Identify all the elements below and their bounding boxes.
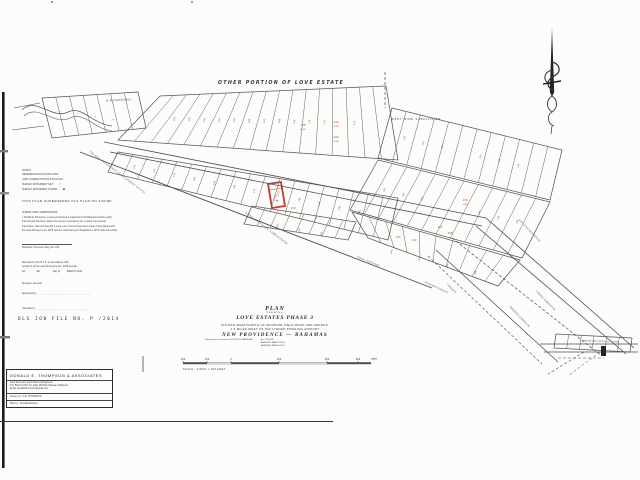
situate-line-1: SITUATE WEST/NORTH OF WINDSOR FIELD ROAD… (175, 323, 375, 327)
charlotteville-label: CHARLOTTEVILLE SUBDIVISION (245, 211, 289, 246)
terraces-label: PERMANENT TERRACES (424, 281, 449, 295)
lot-division (433, 236, 436, 262)
scale-tick-label: 200 (277, 358, 282, 361)
lot-label: 126 (518, 163, 521, 168)
lot-label: 168 (474, 270, 477, 275)
lot-division (446, 241, 453, 267)
scan-edge-bar (2, 92, 5, 468)
lot-label: 121 (404, 135, 407, 140)
lot-label: 102 (189, 116, 192, 121)
road-line (486, 218, 634, 348)
lot-division (450, 185, 478, 239)
lot-division (567, 335, 569, 349)
red-lot-area: 5,000 (462, 204, 468, 206)
road-line (110, 152, 482, 226)
other-portion-label: OTHER PORTION OF LOVE ESTATE (218, 80, 344, 86)
lot-label: 144 (194, 176, 197, 181)
lot-label: 107 (264, 118, 267, 123)
note-reference: REFERENCE DLS PLANS NOS. (22, 173, 65, 177)
approved-by-rule: _ _ _ _ _ _ _ _ _ _ _ _ _ _ _ (37, 292, 91, 295)
scan-speck (51, 1, 53, 3)
lot-label: 106 (249, 118, 252, 123)
lot-division (419, 231, 420, 257)
lot-division (266, 91, 279, 151)
lot-label: 147 (254, 188, 257, 193)
lot-label: 110 (309, 119, 312, 124)
road-line (436, 250, 558, 362)
north-arrow-icon (543, 28, 561, 134)
red-lot-number: 156 (462, 198, 468, 202)
lot-division (316, 89, 320, 154)
instance-line: Surveyed at the instance of DOTSON & MAR… (205, 339, 375, 348)
recorded-no: No. (22, 270, 26, 274)
road-line (568, 352, 600, 376)
lot-division (508, 199, 536, 255)
lot-division (386, 222, 394, 248)
red-lot-area: 5,000 (333, 141, 339, 143)
scan-smudge (0, 150, 8, 152)
scale-tick-label: 600 (356, 358, 361, 361)
plan-by-row: Plan by : Kendall Mortimer (7, 400, 112, 407)
lot-label: 142 (154, 168, 157, 173)
lot-label: 4 (113, 118, 115, 120)
lot-division (422, 178, 450, 231)
lot-division (346, 88, 348, 157)
lot-band (108, 152, 398, 240)
instance-text: Surveyed at the instance of DOTSON & MAR… (205, 339, 253, 341)
dls-job-file: DLS JOB FILE NO. P /2014 (18, 317, 120, 322)
red-lot-number: 139 (291, 206, 296, 210)
lot-label: 111 (324, 119, 327, 124)
lot-band (378, 108, 562, 200)
situate-line-2: 1.5 MILES WEST OF SIR LYNDEN PINDLING AI… (175, 327, 375, 331)
lot-division (309, 216, 317, 234)
lot-division (167, 94, 199, 143)
lot-label: 146 (234, 184, 237, 189)
approved-by-line: Approved by _ _ _ _ _ _ _ _ _ _ _ _ _ _ … (22, 292, 91, 296)
red-lot-number: 120 (333, 135, 339, 139)
pineridge-label: PINERIDGE SUBDIVISION (508, 305, 530, 328)
lot-label: 104 (219, 117, 222, 122)
scale-feet-label: FEET (371, 358, 377, 361)
recorded-date: MARCH 2014 (67, 270, 82, 274)
certificate-title: SURVEYOR'S CERTIFICATE (22, 211, 118, 214)
lot-division (479, 192, 507, 247)
lot-division (450, 126, 463, 176)
lot-division (464, 129, 477, 179)
lot-division (56, 97, 66, 136)
lot-division (69, 96, 78, 135)
surveyors-certificate: SURVEYOR'S CERTIFICATE I, Donald E. Thom… (22, 211, 118, 234)
lot-label: 148 (299, 197, 302, 202)
lot-label: 103 (204, 117, 207, 122)
plan-drawing: OTHER PORTION OF LOVE ESTATEWEST WIND SU… (0, 0, 640, 480)
road-line (14, 103, 40, 108)
scan-speck (191, 1, 193, 3)
surveyor-signature: Donald E. Thompson Reg. No. 035 (22, 244, 72, 249)
lot-division (123, 154, 133, 175)
firm-details: Land Surveyors-Land Planners-Engineers P… (7, 380, 112, 393)
supersedes-note: THIS PLAN SUPERSEDES DLS PLAN NO.532/NP (22, 199, 112, 203)
certificate-line: the Land Surveyor's Act, 1975, and the L… (22, 229, 118, 234)
lot-division (373, 196, 383, 237)
checked-by-label: Checked by (22, 307, 35, 310)
road-reservation-label: 60FT. ROAD RESERVATION (518, 219, 541, 243)
lot-label: 125 (499, 158, 502, 163)
road-line (452, 238, 602, 356)
lot-label: 2 (77, 112, 79, 114)
scale-tick-label: 400 (325, 358, 330, 361)
lot-label: 141 (134, 164, 137, 169)
lot-division (329, 188, 339, 225)
checked-by-line: Checked by _ _ _ _ _ _ _ _ _ _ _ _ _ _ _ (22, 307, 90, 311)
road-line (12, 126, 44, 130)
lot-label: 109 (294, 119, 297, 124)
approved-by-label: Approved by (22, 292, 36, 295)
plan-title-block: PLAN SHEWING LOVE ESTATES PHASE 3 SITUAT… (175, 306, 375, 348)
lot-division (151, 95, 187, 143)
shewing-word: SHEWING (175, 312, 375, 314)
checked-by-rule: _ _ _ _ _ _ _ _ _ _ _ _ _ _ _ (36, 307, 90, 310)
certificate-line: that this plan has been made from survey… (22, 220, 118, 225)
road-line (428, 256, 542, 364)
lot-label: 135 (498, 215, 501, 220)
amendment-column: Acc: 236,398 AMENDED MARCH 2014 AMENDED … (261, 339, 285, 348)
lot-division (536, 147, 548, 197)
red-lot-number: 144 (412, 238, 417, 242)
red-lot-number: 143 (396, 235, 401, 239)
red-lot-number: 118 (300, 123, 306, 127)
windsor-field-road-label: WINDSOR FIELD ROAD (60FT. WIDE) (581, 339, 619, 343)
scan-smudge (0, 336, 10, 338)
lot-division (407, 115, 421, 165)
monument-set-icon: ○ (59, 182, 61, 186)
red-lot-area: 5,000 (300, 129, 306, 131)
scale-tick-label: 100 (205, 358, 210, 361)
road-line (476, 226, 626, 354)
recorded-date-line: No. 9th Day of MARCH 2014 (22, 270, 82, 274)
recorded-dayof: Day of (53, 270, 60, 274)
surveyor-general-line: Surveyor General (22, 282, 42, 286)
lot-division (83, 95, 92, 133)
location-line: NEW PROVIDENCE — BAHAMAS (175, 333, 375, 338)
lot-division (521, 143, 533, 193)
lot-label: 122 (423, 140, 426, 145)
red-lot-number: 119 (333, 120, 339, 124)
note-monument-found-label: SURVEY MONUMENT FOUND (22, 188, 57, 191)
firm-name: DONALD E. THOMPSON & ASSOCIATES (7, 370, 112, 380)
lot-label: 105 (234, 117, 237, 122)
lot-division (283, 90, 293, 152)
lot-label: 131 (384, 187, 387, 192)
lot-division (592, 336, 594, 350)
lot-label: 112 (354, 120, 357, 125)
road-marker (601, 346, 606, 356)
lot-label: 162 (299, 227, 302, 232)
npd-boundary-label: THE NEW PROVIDENCE DEVELOPMENT CO.LTD. (88, 149, 146, 194)
lot-label: 132 (403, 192, 406, 197)
lot-label: 143 (174, 172, 177, 177)
notes-block: NOTES REFERENCE DLS PLANS NOS. GRID CONN… (22, 169, 65, 192)
firm-title-block: DONALD E. THOMPSON & ASSOCIATES Land Sur… (6, 369, 113, 408)
subdivision-name: LOVE ESTATES PHASE 3 (175, 315, 375, 321)
red-lot-area: 5,000 (333, 126, 339, 128)
amended-note: AMENDED MARCH 2014 (261, 345, 285, 348)
lot-label: 150 (339, 205, 342, 210)
road-line (548, 352, 584, 374)
lot-division (459, 246, 470, 272)
lot-label: 108 (279, 118, 282, 123)
lot-label: 161 (277, 223, 280, 228)
survey-by-row: Survey by : D.E. THOMPSON (7, 393, 112, 400)
survey-plan-sheet: OTHER PORTION OF LOVE ESTATEWEST WIND SU… (0, 0, 640, 480)
firm-email: Email: donaldethompson@gmail.com (10, 388, 109, 391)
lot-band (352, 212, 520, 286)
lot-division (97, 95, 106, 133)
scan-smudge (0, 192, 9, 194)
recorded-block: Recorded in the D.L.S. in accordance wit… (22, 261, 82, 274)
scale-tick-label: 0 (230, 358, 232, 361)
lot-division (364, 164, 392, 215)
scale-bar (183, 362, 371, 364)
foxhill-label: FOXHILL SUBDIVISION (356, 256, 380, 268)
lot-division (402, 226, 407, 252)
lot-label: 167 (446, 263, 449, 268)
lot-division (373, 87, 382, 159)
lot-label: 134 (479, 210, 482, 215)
scale-tick-label: 200 (181, 358, 186, 361)
lot-label: 101 (174, 116, 177, 121)
red-lot-number: 158 (447, 231, 453, 235)
plan-word: PLAN (175, 306, 375, 312)
note-monument-set-label: SURVEY MONUMENT SET (22, 183, 53, 186)
lot-label: 3 (95, 115, 97, 117)
hanchell-label: H.B.HANCHELL (106, 97, 132, 102)
red-lot-area: 9,583 (274, 194, 277, 201)
foxdale-label: FOXDALE SUBDIVISION (535, 290, 556, 311)
note-monument-found: SURVEY MONUMENT FOUND■ (22, 187, 65, 192)
lot-division (393, 171, 421, 223)
lot-label: 124 (480, 154, 483, 159)
lot-label: 165 (390, 249, 393, 254)
lot-division (299, 90, 306, 153)
west-wind-label: WEST WIND SUBDIVISION (391, 117, 441, 121)
lot-label: 123 (442, 144, 445, 149)
monument-found-icon: ■ (63, 187, 65, 191)
red-lot-number: 157 (437, 225, 443, 229)
scale-text: SCALE : 1INCH = 200 FEET (183, 368, 226, 371)
lot-division (485, 255, 503, 281)
recorded-day: 9th (37, 270, 40, 274)
lot-division (359, 87, 365, 157)
lot-division (344, 191, 354, 230)
